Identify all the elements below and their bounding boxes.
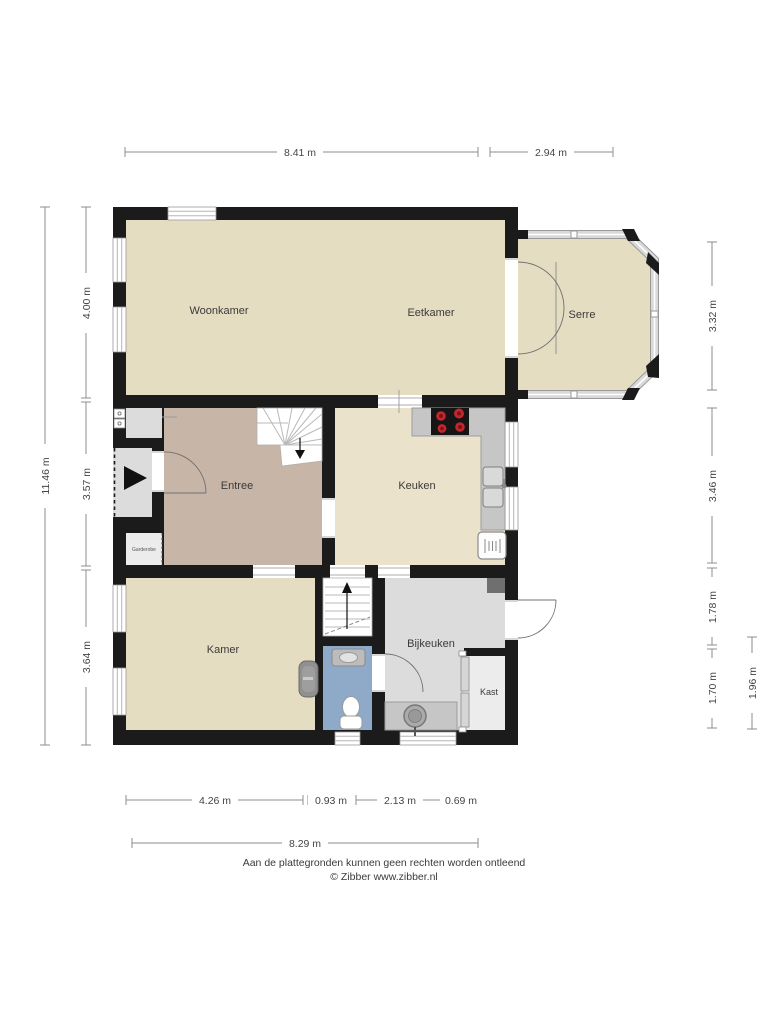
svg-text:8.41 m: 8.41 m	[284, 147, 316, 159]
window-left-kamer-1	[113, 585, 126, 632]
kast-label: Kast	[480, 687, 499, 697]
dishwasher-icon	[478, 532, 506, 559]
garderobe-label: Garderobe	[132, 547, 156, 553]
room-serre: Serre	[518, 229, 659, 400]
svg-text:2.13 m: 2.13 m	[384, 795, 416, 807]
dim-bottom-2: 0.93 m	[308, 793, 354, 807]
entree-label: Entree	[221, 480, 253, 492]
dim-right-2: 3.46 m	[705, 408, 719, 563]
window-left-kamer-2	[113, 668, 126, 715]
washbasin-icon	[299, 661, 318, 697]
bijkeuken-label: Bijkeuken	[407, 638, 455, 650]
svg-text:3.64 m: 3.64 m	[81, 641, 93, 673]
svg-text:3.46 m: 3.46 m	[707, 470, 719, 502]
keuken-label: Keuken	[398, 480, 435, 492]
svg-text:1.78 m: 1.78 m	[707, 591, 719, 623]
bijkeuken-exterior-door	[505, 600, 556, 640]
straight-stairs-icon	[323, 578, 372, 636]
dim-right-1: 3.32 m	[705, 242, 719, 390]
window-right-keuken-1	[505, 422, 518, 467]
svg-text:3.32 m: 3.32 m	[707, 300, 719, 332]
svg-text:4.26 m: 4.26 m	[199, 795, 231, 807]
svg-text:1.96 m: 1.96 m	[747, 667, 759, 699]
dim-bottom-3: 2.13 m	[356, 793, 443, 807]
dim-right-4: 1.70 m	[705, 649, 719, 728]
opening-keuken-bijkeuken	[378, 565, 410, 578]
cooktop-icon	[431, 408, 469, 435]
dim-bottom-1: 4.26 m	[126, 793, 303, 807]
woonkamer-label: Woonkamer	[189, 305, 248, 317]
window-left-woonkamer-2	[113, 307, 126, 352]
toilet-basin-icon	[332, 649, 365, 666]
window-right-keuken-2	[505, 487, 518, 530]
window-left-woonkamer-1	[113, 238, 126, 282]
dim-top-serre: 2.94 m	[490, 145, 613, 159]
svg-text:0.69 m: 0.69 m	[445, 795, 477, 807]
dim-top-main: 8.41 m	[125, 145, 478, 159]
dim-bottom-total: 8.29 m	[132, 836, 478, 850]
boiler-icon	[487, 578, 505, 593]
dim-left-2: 3.57 m	[79, 402, 93, 566]
kamer-label: Kamer	[207, 644, 240, 656]
dim-left-total: 11.46 m	[38, 207, 52, 745]
meter-cupboard-floor	[126, 408, 162, 438]
footer: Aan de plattegronden kunnen geen rechten…	[243, 857, 526, 883]
svg-text:2.94 m: 2.94 m	[535, 147, 567, 159]
svg-text:1.70 m: 1.70 m	[707, 672, 719, 704]
svg-text:11.46 m: 11.46 m	[40, 457, 52, 494]
dim-right-outer: 1.96 m	[745, 637, 759, 729]
opening-stairs	[330, 565, 365, 578]
dim-left-3: 3.64 m	[79, 570, 93, 745]
svg-text:4.00 m: 4.00 m	[81, 287, 93, 319]
window-top-woonkamer	[168, 207, 216, 220]
dim-left-1: 4.00 m	[79, 207, 93, 398]
opening-entree-keuken	[322, 498, 335, 538]
footer-copyright: © Zibber www.zibber.nl	[330, 871, 438, 883]
svg-text:3.57 m: 3.57 m	[81, 468, 93, 500]
serre-wall-stub-top	[518, 230, 528, 239]
window-bottom-toilet	[335, 732, 360, 745]
window-bottom-bijkeuken	[400, 732, 456, 745]
serre-label: Serre	[569, 309, 596, 321]
footer-disclaimer: Aan de plattegronden kunnen geen rechten…	[243, 857, 526, 869]
serre-wall-stub-bottom	[518, 390, 528, 399]
svg-text:0.93 m: 0.93 m	[315, 795, 347, 807]
dim-right-3: 1.78 m	[705, 568, 719, 645]
floorplan-page: Serre	[0, 0, 768, 1024]
opening-entree-kamer	[253, 565, 295, 578]
eetkamer-label: Eetkamer	[407, 307, 454, 319]
dim-bottom-4: 0.69 m	[440, 793, 482, 807]
floorplan-svg: Serre	[0, 0, 768, 1024]
svg-text:8.29 m: 8.29 m	[289, 838, 321, 850]
